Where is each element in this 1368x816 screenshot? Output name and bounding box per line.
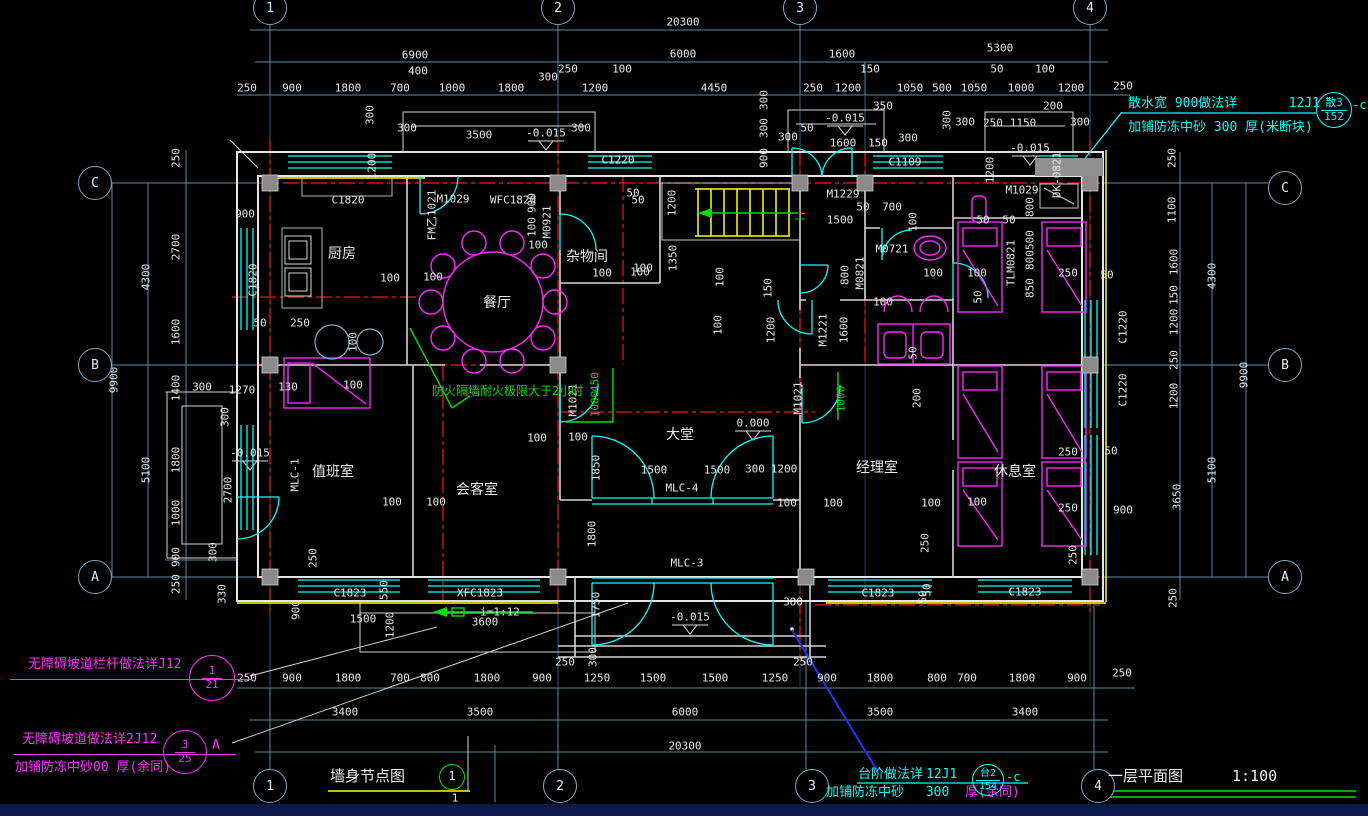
dim-label: 1600 [171,319,182,346]
detail-bubble-steps-bottom: 154 [976,780,1000,793]
dim-label: 6000 [672,707,699,718]
dim-label: 100 [1035,64,1055,75]
dim-label: -0.015 [670,612,710,623]
dim-label: 700 [882,202,902,213]
dim-label: 300 [220,407,231,427]
dim-label: 1600 [829,49,856,60]
dim-label: 500 [1025,230,1036,250]
dim-label: 100 [343,380,363,391]
dim-label: 250 [308,548,319,568]
dim-label: 250 [290,318,310,329]
dim-label: 250 [1058,268,1078,279]
dim-label: 1800 [335,673,362,684]
dim-label: 250 [555,657,575,668]
dim-label: 250 [1167,148,1178,168]
dim-label: 1800 [171,447,182,474]
dim-label: 100 [592,268,612,279]
room-label-reception: 会客室 [456,483,498,497]
dim-label: 3400 [1012,707,1039,718]
dim-label: 6000 [670,49,697,60]
window-tag: C1820 [248,263,259,296]
window-tag: C1220 [1118,373,1129,406]
axis-bubble-right-A: A [1268,560,1302,594]
dim-label: 100 [873,297,893,308]
dim-label: 300 [538,72,558,83]
door-tag: TLM0821 [1006,240,1017,286]
dim-label: 5100 [1207,457,1218,484]
dim-label: 1500 [704,465,731,476]
dim-label: 100 [713,315,724,335]
dim-label: 100 [823,498,843,509]
dim-label: 1200 [1058,83,1085,94]
dim-label: 900 [1067,673,1087,684]
dim-label: 500 [932,83,952,94]
dim-label: 4300 [141,264,152,291]
title-wall-node-bubble-text: 1 [448,770,455,784]
dim-label: 800 [420,673,440,684]
detail-bubble-ramp-rail: 1 21 [189,655,235,701]
dim-label: 900 [532,673,552,684]
dim-label: 上 [794,209,806,221]
axis-bubble-left-B: B [78,348,112,382]
window-tag: MLC-4 [665,483,698,494]
dim-label: 700 [390,83,410,94]
dim-label: 1270 [229,385,256,396]
dim-label: 1000 [590,391,601,418]
note-steps-suffix: -c [1006,771,1020,783]
dim-label: 250 [1058,447,1078,458]
window-tag: C1220 [1118,310,1129,343]
dim-label: 700 [390,673,410,684]
dim-label: 150 [868,138,888,149]
dim-label: 250 [1058,503,1078,514]
door-tag: M1021 [793,381,804,414]
dim-label: 250 [1113,81,1133,92]
dim-label: 300 [745,464,765,475]
dim-label: 100 [630,267,650,278]
dim-label: 50 [976,215,989,226]
window-tag: C1823 [1008,587,1041,598]
dim-label: 900 [759,148,770,168]
dim-label: 350 [873,101,893,112]
dim-label: 1600 [1169,249,1180,276]
dim-label: 3500 [467,707,494,718]
door-tag: M0821 [855,256,866,289]
dim-label: 330 [217,584,228,604]
axis-bubble-left-C: C [78,166,112,200]
room-label-manager: 经理室 [856,461,898,475]
window-tag: C1109 [888,157,921,168]
dim-label: 50 [253,318,266,329]
dim-label: 250 [171,148,182,168]
dim-label: 100 [423,272,443,283]
dim-label: 250 [803,83,823,94]
note-firewall: 防火隔墙耐火极限大于2小时 [432,385,583,397]
title-wall-node-bubble: 1 [439,764,465,790]
room-label-duty: 值班室 [312,465,354,479]
note-splash-line1: 散水宽 900做法详 12J1 [1128,97,1320,110]
dim-label: 800 [927,673,947,684]
note-steps-ref: 12J1 [926,768,957,781]
dim-label: 900 [171,547,182,567]
dim-label: 1750 [591,592,602,619]
detail-bubble-splash: 散3 152 [1316,92,1352,128]
dim-label: 1200 [385,612,396,639]
detail-bubble-ramp: 3 25 [163,730,207,774]
dim-label: 300 [898,133,918,144]
dim-label: 450 [590,372,601,392]
window-tag: C1823 [333,588,366,599]
dim-label: 150 [860,64,880,75]
window-tag: WFC1820 [490,195,536,206]
dim-label: 800 [840,265,851,285]
dim-label: 250 [1112,668,1132,679]
dim-label: 2700 [223,477,234,504]
detail-bubble-steps: 台2 154 [972,764,1004,796]
interior-walls-layer [167,110,1082,657]
dim-label: 50 [1104,446,1117,457]
dim-label: 250 [1068,545,1079,565]
dim-label: 50 [1100,270,1113,281]
note-steps-line2b: 300 [926,785,949,800]
dim-label: 900 [282,673,302,684]
dim-label: 1600 [830,138,857,149]
dim-label: 1250 [762,673,789,684]
dim-label: 300 [778,132,798,143]
title-wall-node: 墙身节点图 [330,769,405,784]
dim-label: 250 [1168,588,1179,608]
dim-label: 50 [973,290,984,303]
dim-label: 800 [1025,197,1036,217]
dim-label: 1200 [985,157,996,184]
dim-label: 3500 [466,130,493,141]
dim-label: 900 [291,600,302,620]
dim-label: -0.015 [526,128,566,139]
window-tag: XFC1823 [457,588,503,599]
note-steps-text: 台阶做法详 [858,768,923,781]
dim-label: 900 [1113,505,1133,516]
door-tag: DK-0821 [1052,152,1063,198]
dim-label: 1200 [367,153,378,180]
dim-label: 900 [282,83,302,94]
dim-label: 1100 [1167,197,1178,224]
dim-label: 100 [612,64,632,75]
dim-label: 100 [527,217,538,237]
dim-label: 1050 [961,83,988,94]
dim-label: 1500 [641,465,668,476]
detail-bubble-ramp-rail-top: 1 [209,665,216,678]
dim-label: 130 [278,382,298,393]
dim-label: 2700 [171,234,182,261]
dim-label: 1250 [584,673,611,684]
dim-label: 1400 [171,375,182,402]
dim-label: 1200 [766,317,777,344]
dim-label: 5100 [141,457,152,484]
dim-label: 1200 [1169,383,1180,410]
detail-bubble-splash-top: 散3 [1325,97,1343,110]
note-ramp-suffix: A [212,739,220,752]
dim-label: 100 [923,268,943,279]
dim-label: 50 [908,346,919,359]
dim-label: 1200 [667,190,678,217]
door-tag: M0721 [875,244,908,255]
dim-label: 3500 [867,707,894,718]
dim-label: 1350 [668,245,679,272]
dim-label: -0.015 [230,448,270,459]
dimension-lines-layer [112,20,1268,802]
dim-label: 50 [918,590,929,603]
dim-label: 9900 [1239,362,1250,389]
dim-label: 1150 [1010,118,1037,129]
dim-label: 100 [715,267,726,287]
dim-label: 5300 [987,43,1014,54]
dim-label: 1800 [498,83,525,94]
dim-label: 100 [921,498,941,509]
window-tag: C1220 [601,155,634,166]
dim-label: 100 [777,498,797,509]
dim-label: 300 [571,123,591,134]
dim-label: 50 [800,123,813,134]
dim-label: 100 [380,273,400,284]
dim-label: 1000 [836,386,847,413]
room-label-storage: 杂物间 [566,250,608,264]
door-tag: M1029 [436,194,469,205]
door-tag: M1221 [818,313,829,346]
dim-label: 300 [1070,117,1090,128]
title-floor-plan: 一层平面图 [1108,769,1183,784]
dim-label: 850 [1025,278,1036,298]
dim-label: 300 [759,118,770,138]
dim-label: 300 [365,105,376,125]
dim-label: 1050 [897,83,924,94]
room-label-dining: 餐厅 [483,296,511,310]
room-label-lounge: 休息室 [994,465,1036,479]
dim-label: -0.015 [825,113,865,124]
room-label-kitchen: 厨房 [328,247,356,261]
dim-label: 550 [379,580,390,600]
dim-label: 50 [631,195,644,206]
note-splash-text: 散水宽 900做法详 [1128,97,1237,110]
dim-label: 1000 [171,500,182,527]
detail-bubble-splash-bottom: 152 [1321,110,1347,124]
dim-label: 100 [348,332,359,352]
dim-label: 1800 [867,673,894,684]
door-tag: M1229 [826,189,859,200]
dim-label: 0.000 [736,418,769,429]
axis-bubble-bottom-1: 1 [253,769,287,803]
dim-label: 100 [908,212,919,232]
window-tag: MLC-3 [670,558,703,569]
room-label-lobby: 大堂 [666,428,694,442]
dim-label: 1200 [1169,309,1180,336]
note-splash-line2: 加铺防冻中砂 300 厚(米断块) [1128,121,1313,134]
note-ramp-line2: 加铺防冻中砂00 厚(余同) [15,761,171,774]
axis-bubble-bottom-3: 3 [795,769,829,803]
dim-label: 50 [990,64,1003,75]
dim-label: i=1:12 [480,607,520,618]
dim-label: 200 [912,388,923,408]
note-steps-line2a: 加铺防冻中砂 [826,785,904,800]
dim-label: 800 [1025,250,1036,270]
dim-label: 100 [382,497,402,508]
dim-label: 100 [967,268,987,279]
dim-label: 200 [1043,101,1063,112]
dim-label: 300 [942,110,953,130]
dim-label: 100 [568,432,588,443]
axis-bubble-left-A: A [78,560,112,594]
dim-label: -0.015 [1010,143,1050,154]
dim-label: 300 [397,123,417,134]
title-floor-plan-scale: 1:100 [1232,769,1277,784]
dim-label: 1000 [1008,83,1035,94]
dim-label: 250 [793,657,813,668]
blue-leader [792,630,878,772]
dim-label: 100 [967,497,987,508]
bottom-blue-bar [0,804,1368,816]
dim-label: 900 [235,209,255,220]
dim-label: 20300 [668,741,701,752]
dim-label: 1 [452,793,459,804]
dim-label: 900 [817,673,837,684]
dim-label: 1200 [835,83,862,94]
detail-bubble-ramp-top: 3 [182,739,189,752]
window-tag: C1823 [861,588,894,599]
detail-bubble-ramp-bottom: 25 [175,752,194,766]
dim-label: 50 [856,202,869,213]
dim-label: 1800 [335,83,362,94]
dim-label: 300 [955,117,975,128]
dim-label: 20300 [666,17,699,28]
dim-label: 1200 [771,464,798,475]
dim-label: 1000 [439,83,466,94]
dim-label: 250 [1169,350,1180,370]
cad-viewport[interactable]: 2030069006000160053004002501001505010025… [0,0,1368,816]
dim-label: 1500 [827,215,854,226]
dim-label: 6900 [402,50,429,61]
dim-label: 4450 [701,83,728,94]
dim-label: 1850 [591,455,602,482]
dim-label: 300 [588,647,599,667]
window-tag: C1820 [331,195,364,206]
level-symbols-layer [230,126,1085,790]
detail-bubble-ramp-rail-bottom: 21 [202,678,221,692]
dim-label: 100 [426,497,446,508]
dim-label: 1800 [474,673,501,684]
dim-label: 1800 [1009,673,1036,684]
axis-bubble-bottom-2: 2 [543,769,577,803]
dim-label: 400 [408,66,428,77]
dim-label: 250 [983,118,1003,129]
dim-label: 250 [920,533,931,553]
dim-label: 1600 [839,317,850,344]
dim-label: 150 [763,278,774,298]
door-tag: M0921 [542,205,553,238]
dim-label: 150 [1169,285,1180,305]
dim-label: 1500 [350,614,377,625]
dim-label: 3650 [1172,484,1183,511]
dim-label: 3400 [332,707,359,718]
dim-label: 100 [528,240,548,251]
door-tag: FM乙1021 [427,190,438,241]
dim-label: 50 [1002,215,1015,226]
dim-label: 1200 [582,83,609,94]
dim-label: 700 [957,673,977,684]
dim-label: 100 [527,433,547,444]
axis-bubble-right-B: B [1268,348,1302,382]
dim-label: 300 [192,382,212,393]
dim-label: 300 [759,90,770,110]
axis-bubble-right-C: C [1268,171,1302,205]
dim-label: 4300 [1207,263,1218,290]
dim-label: 1500 [702,673,729,684]
detail-bubble-steps-top: 台2 [980,768,996,780]
dim-label: 300 [783,597,803,608]
dim-label: 300 [208,542,219,562]
note-splash-suffix: -c [1352,99,1366,111]
dim-label: 250 [171,574,182,594]
dim-label: 1500 [640,673,667,684]
dim-label: 250 [558,64,578,75]
dim-label: 1800 [587,521,598,548]
dim-label: 250 [237,83,257,94]
door-tag: M1029 [1005,185,1038,196]
window-tag: MLC-1 [290,458,301,491]
